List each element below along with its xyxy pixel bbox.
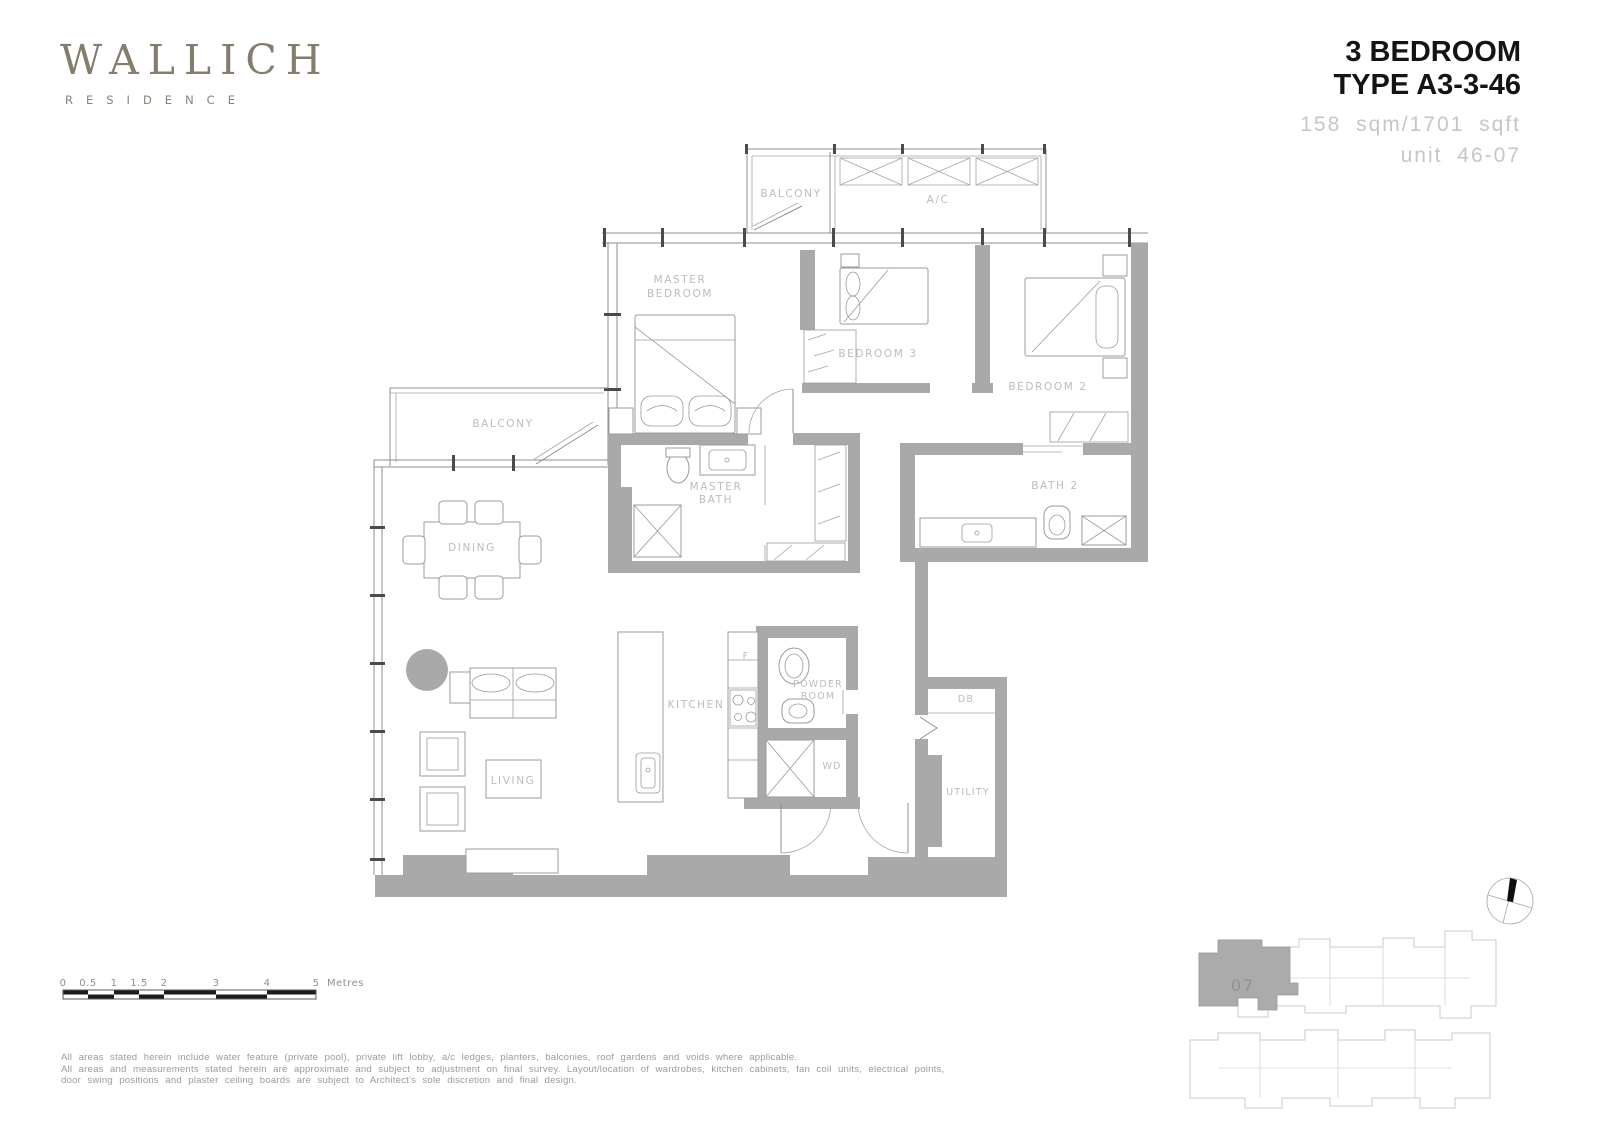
label-balcony-left: BALCONY — [472, 418, 533, 430]
label-fridge: F — [743, 651, 750, 662]
disclaimer-block: All areas stated herein include water fe… — [61, 1052, 1161, 1087]
scale-tick-05: 0.5 — [79, 978, 96, 989]
scale-tick-0: 0 — [60, 978, 67, 989]
scale-tick-2: 2 — [161, 978, 168, 989]
north-needle-icon — [1507, 878, 1517, 902]
label-dining: DINING — [448, 542, 496, 554]
label-master-bath-1: MASTER — [690, 481, 743, 493]
label-bath2: BATH 2 — [1031, 480, 1079, 492]
ac-louvres — [840, 158, 1038, 185]
disclaimer-line-3: door swing positions and plaster ceiling… — [61, 1075, 1161, 1087]
floorplan-page: WALLICH RESIDENCE 3 BEDROOM TYPE A3-3-46… — [0, 0, 1600, 1131]
key-plan-unit-07-shape — [1199, 940, 1298, 1010]
living-set — [406, 649, 558, 873]
label-master-bath-2: BATH — [699, 494, 733, 506]
scale-tick-4: 4 — [264, 978, 271, 989]
scale-tick-5: 5 — [313, 978, 320, 989]
powder-room-fixtures — [766, 648, 843, 797]
label-balcony-top: BALCONY — [760, 188, 821, 200]
label-living: LIVING — [491, 775, 536, 787]
master-bed — [609, 315, 761, 434]
label-master-bedroom-1: MASTER — [654, 274, 707, 286]
key-plan-unit-label: 07 — [1231, 976, 1255, 995]
label-db: DB — [958, 694, 974, 705]
label-utility: UTILITY — [946, 787, 990, 798]
master-bath-fixtures — [634, 445, 755, 557]
scale-bar: 0 0.5 1 1.5 2 3 4 5 Metres — [60, 978, 364, 999]
label-kitchen: KITCHEN — [668, 699, 725, 711]
kitchen-set — [618, 632, 758, 802]
disclaimer-line-1: All areas stated herein include water fe… — [61, 1052, 1161, 1064]
key-plan: 07 — [1190, 931, 1496, 1108]
label-master-bedroom-2: BEDROOM — [647, 288, 713, 300]
bedroom2-bed — [1025, 255, 1127, 378]
disclaimer-line-2: All areas and measurements stated herein… — [61, 1064, 1161, 1076]
scale-tick-3: 3 — [213, 978, 220, 989]
scale-unit-label: Metres — [327, 978, 364, 989]
label-bedroom3: BEDROOM 3 — [838, 348, 917, 360]
bath2-fixtures — [920, 446, 1126, 547]
floor-plan-drawing: BALCONY A/C MASTER BEDROOM BEDROOM 3 BED… — [0, 0, 1600, 1131]
label-powder-2: ROOM — [801, 691, 836, 702]
label-ac: A/C — [927, 194, 950, 206]
label-wd: WD — [822, 761, 841, 772]
label-bedroom2: BEDROOM 2 — [1008, 381, 1087, 393]
bedroom3-bed — [840, 254, 928, 324]
scale-tick-1: 1 — [111, 978, 118, 989]
label-powder-1: POWDER — [793, 679, 843, 690]
scale-tick-15: 1.5 — [130, 978, 147, 989]
north-compass — [1487, 878, 1533, 924]
